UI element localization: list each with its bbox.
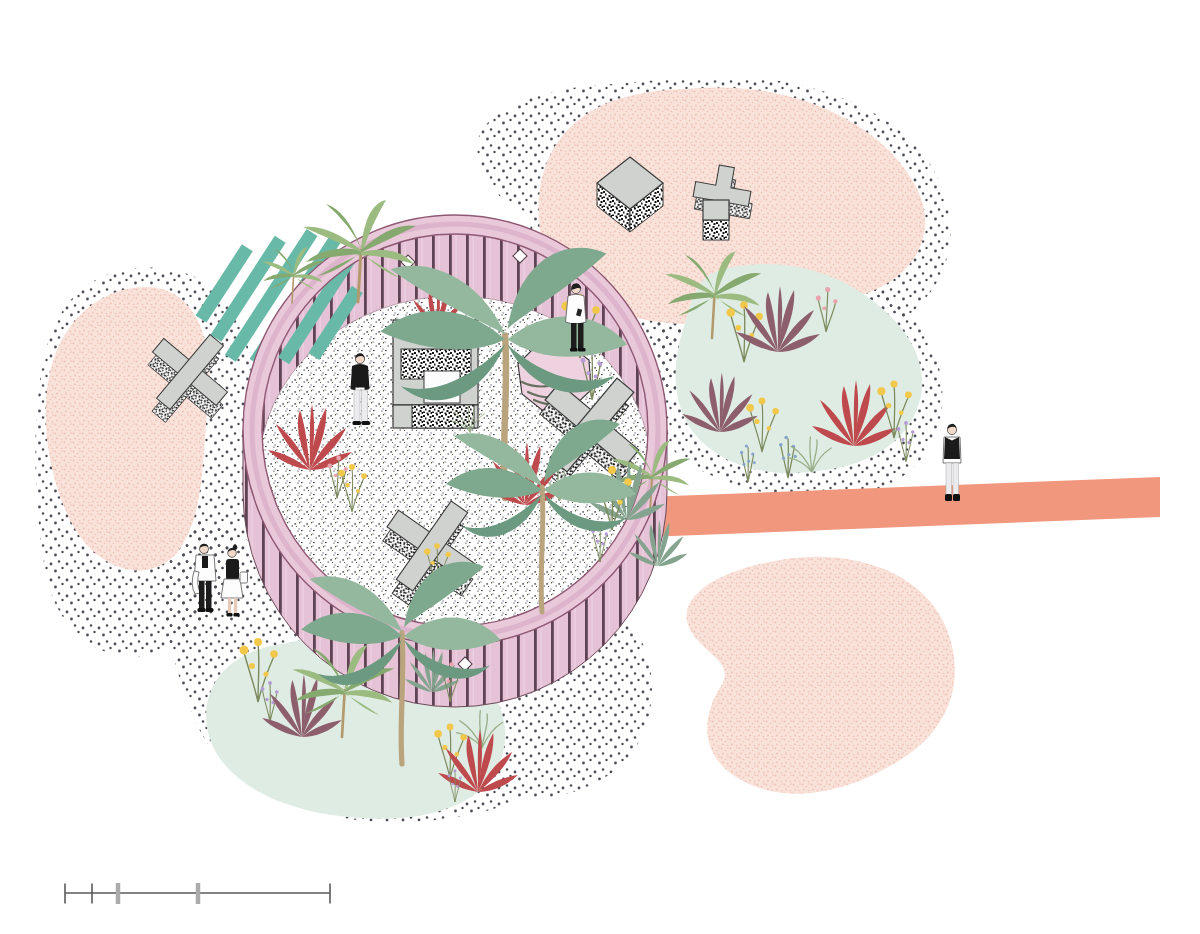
- coral-walkway: [645, 477, 1160, 537]
- scale-bar: [65, 883, 330, 904]
- pink-blob-bottom-right: [687, 557, 955, 794]
- handbag: [240, 572, 248, 583]
- illustration-canvas: [0, 0, 1200, 934]
- pavilion-illustration: [0, 0, 1200, 934]
- sculpture-small-cube: [703, 200, 729, 240]
